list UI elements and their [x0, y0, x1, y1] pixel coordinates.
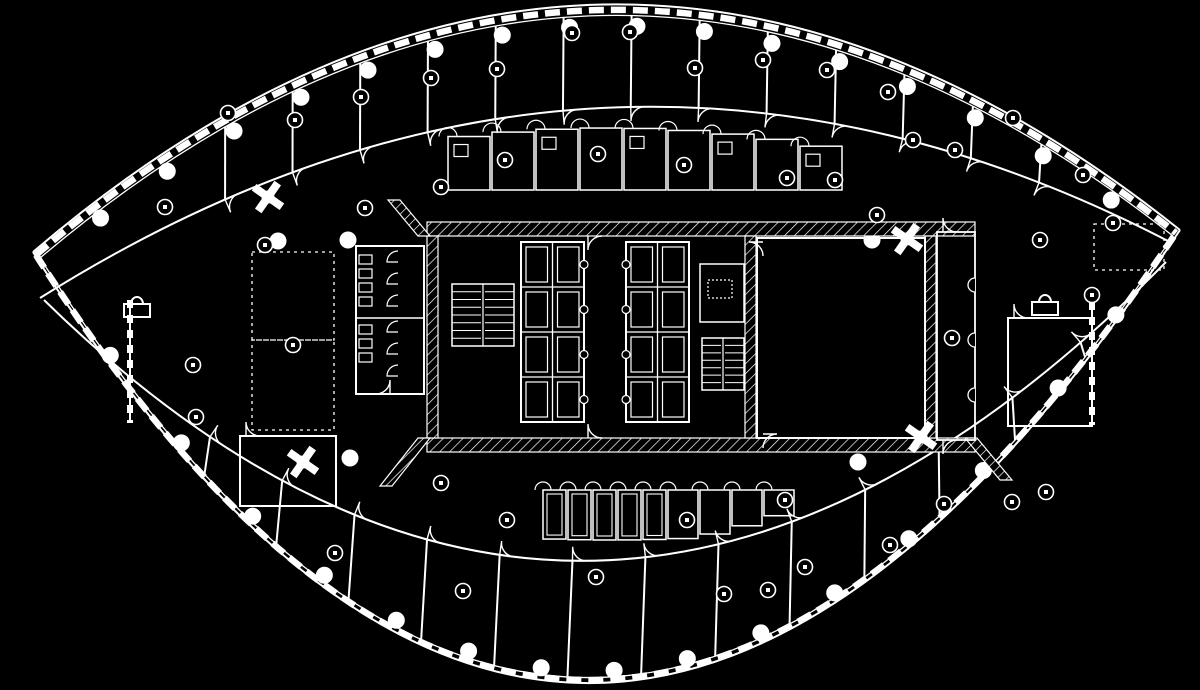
room-tag-glyph	[1038, 238, 1042, 242]
room-tag-glyph	[194, 415, 198, 419]
door-arc	[1034, 182, 1052, 200]
column-marker	[360, 62, 376, 78]
room-tag-glyph	[886, 90, 890, 94]
column-marker	[901, 531, 917, 547]
service-shaft	[572, 494, 587, 536]
hatched-wall	[427, 236, 438, 438]
column-marker	[696, 24, 712, 40]
column-marker	[461, 643, 477, 659]
room-tag-glyph	[783, 498, 787, 502]
elevator-car	[526, 337, 548, 372]
stall-door-arc	[387, 251, 398, 262]
column-marker	[316, 567, 332, 583]
elevator-door-notch	[622, 261, 630, 269]
room-tag-glyph	[722, 592, 726, 596]
service-door-nook	[791, 137, 809, 146]
column-marker	[1103, 192, 1119, 208]
partition-wall	[204, 437, 210, 474]
room-tag-glyph	[1011, 116, 1015, 120]
column-marker	[427, 41, 443, 57]
elevator-car	[526, 292, 548, 327]
room-tag-glyph	[942, 502, 946, 506]
door-arc	[246, 422, 260, 436]
service-door-nook	[692, 482, 708, 490]
column-marker	[102, 347, 118, 363]
room-tag-glyph	[911, 138, 915, 142]
column-marker	[1108, 307, 1124, 323]
stall-door-arc	[387, 343, 398, 354]
room-tag-glyph	[875, 213, 879, 217]
column-marker	[173, 435, 189, 451]
room-tag-glyph	[803, 565, 807, 569]
service-shaft	[454, 145, 468, 157]
column-marker	[1050, 380, 1066, 396]
room-tag-glyph	[1044, 490, 1048, 494]
hatched-wall	[380, 438, 430, 486]
outer-wall	[33, 230, 1180, 683]
column-marker	[1035, 148, 1051, 164]
dashed-partition-room	[252, 340, 334, 430]
room-tag-glyph	[1090, 293, 1094, 297]
service-shaft	[597, 494, 612, 536]
washroom-fixture	[359, 269, 372, 278]
door-arc	[832, 124, 848, 140]
column-marker	[899, 79, 915, 95]
column-marker	[679, 651, 695, 667]
room-tag-glyph	[596, 152, 600, 156]
service-room	[700, 490, 730, 534]
door-leaf-cluster	[901, 233, 913, 245]
large-room	[757, 238, 925, 438]
service-door-nook	[756, 482, 772, 490]
column-marker	[388, 612, 404, 628]
door-arc	[572, 547, 586, 561]
elevator-door-notch	[622, 351, 630, 359]
partition-wall	[641, 557, 645, 674]
column-marker	[342, 450, 358, 466]
hatched-wall	[925, 236, 936, 438]
elevator-car	[631, 382, 653, 417]
service-door-nook	[703, 125, 721, 134]
partition-wall	[421, 540, 427, 640]
service-door-nook	[571, 119, 589, 128]
partition-wall	[790, 522, 792, 624]
column-marker	[494, 27, 510, 43]
elevator-car	[526, 247, 548, 282]
partition-wall	[715, 544, 718, 656]
room-tag-glyph	[1010, 500, 1014, 504]
room-tag-glyph	[825, 68, 829, 72]
washroom-fixture	[359, 339, 372, 348]
washroom-fixture	[359, 353, 372, 362]
door-arc	[859, 471, 878, 490]
door-arc	[293, 168, 311, 186]
service-door-nook	[635, 482, 651, 490]
elevator-car	[631, 292, 653, 327]
interior-room	[1008, 318, 1092, 426]
service-door-nook	[724, 482, 740, 490]
partition-wall	[1081, 342, 1085, 357]
elevator-door-notch	[622, 396, 630, 404]
service-shaft	[630, 136, 644, 148]
door-arc	[588, 424, 602, 438]
service-door-nook	[560, 482, 576, 490]
stall-door-arc	[387, 273, 398, 284]
room-tag-glyph	[628, 30, 632, 34]
room-tag-glyph	[833, 178, 837, 182]
room-tag-glyph	[888, 543, 892, 547]
room-tag-glyph	[594, 575, 598, 579]
service-shaft	[542, 137, 556, 149]
washroom-block	[356, 246, 424, 394]
door-arc	[588, 236, 602, 250]
mech-room	[700, 264, 744, 322]
door-leaf-cluster	[262, 191, 274, 203]
floor-plan-canvas	[0, 0, 1200, 690]
column-marker	[245, 508, 261, 524]
room-tag-glyph	[953, 148, 957, 152]
elevator-car	[558, 292, 580, 327]
room-tag-glyph	[163, 205, 167, 209]
column-marker	[226, 123, 242, 139]
fixture-icon	[1039, 295, 1051, 302]
elevator-car	[558, 382, 580, 417]
mech-equipment	[708, 280, 732, 298]
room-tag-glyph	[1111, 221, 1115, 225]
room-tag-glyph	[429, 76, 433, 80]
service-door-nook	[535, 482, 551, 490]
room-tag-glyph	[766, 588, 770, 592]
partition-wall	[1012, 398, 1015, 440]
room-tag-glyph	[682, 163, 686, 167]
door-arc	[1071, 323, 1091, 343]
room-tag-glyph	[685, 518, 689, 522]
column-marker	[340, 232, 356, 248]
elevator-car	[631, 247, 653, 282]
column-marker	[533, 660, 549, 676]
door-leaf-cluster	[915, 431, 927, 443]
washroom-fixture	[359, 283, 372, 292]
lobby-door-notch	[968, 388, 975, 402]
elevator-car	[663, 292, 685, 327]
elevator-door-notch	[622, 306, 630, 314]
lobby-door-notch	[968, 333, 975, 347]
partition-wall	[864, 490, 865, 577]
service-shaft	[718, 142, 732, 154]
elevator-car	[631, 337, 653, 372]
elevator-door-notch	[580, 261, 588, 269]
door-arc	[1004, 378, 1024, 398]
service-shaft	[806, 154, 820, 166]
column-marker	[764, 35, 780, 51]
column-marker	[159, 163, 175, 179]
washroom-fixture	[359, 325, 372, 334]
service-door-nook	[585, 482, 601, 490]
floor-plan-stage	[0, 0, 1200, 690]
elevator-car	[526, 382, 548, 417]
door-arc	[698, 108, 713, 123]
elevator-car	[558, 337, 580, 372]
stall-door-arc	[387, 295, 398, 306]
service-shaft	[622, 494, 637, 536]
door-arc	[563, 110, 578, 125]
room-tag-glyph	[761, 58, 765, 62]
elevator-car	[558, 247, 580, 282]
service-shaft	[547, 494, 562, 535]
stall-door-arc	[387, 321, 398, 332]
column-marker	[827, 585, 843, 601]
service-shaft	[647, 494, 662, 535]
service-door-nook	[527, 120, 545, 129]
hatched-wall	[427, 438, 975, 452]
service-door-nook	[610, 482, 626, 490]
elevator-door-notch	[580, 306, 588, 314]
room-tag-glyph	[363, 206, 367, 210]
door-arc	[1014, 304, 1028, 318]
washroom-fixture	[359, 297, 372, 306]
door-arc	[210, 425, 229, 444]
service-door-nook	[615, 119, 633, 128]
office-inner-wall-bottom	[44, 262, 1166, 561]
door-arc	[376, 380, 390, 394]
room-tag-glyph	[263, 243, 267, 247]
door-arc	[355, 502, 373, 520]
room-tag-glyph	[570, 31, 574, 35]
door-arc	[225, 194, 243, 212]
washroom-fixture	[359, 255, 372, 264]
partition-wall	[494, 555, 500, 666]
partition-wall	[276, 481, 282, 544]
room-tag-glyph	[226, 111, 230, 115]
elevator-door-notch	[580, 351, 588, 359]
room-tag-glyph	[291, 343, 295, 347]
room-tag-glyph	[785, 176, 789, 180]
lobby-door-notch	[968, 278, 975, 292]
fixture-icon	[1032, 302, 1058, 315]
elevator-car	[663, 247, 685, 282]
hatched-wall	[388, 200, 430, 236]
room-tag-glyph	[461, 589, 465, 593]
room-tag-glyph	[503, 158, 507, 162]
room-tag-glyph	[333, 551, 337, 555]
room-tag-glyph	[359, 95, 363, 99]
room-tag-glyph	[693, 66, 697, 70]
room-tag-glyph	[950, 336, 954, 340]
room-tag-glyph	[495, 67, 499, 71]
partition-wall	[349, 515, 355, 599]
elevator-door-notch	[580, 396, 588, 404]
column-marker	[753, 625, 769, 641]
column-marker	[850, 454, 866, 470]
partition-wall	[567, 561, 572, 677]
room-tag-glyph	[191, 363, 195, 367]
room-tag-glyph	[1081, 173, 1085, 177]
door-leaf-cluster	[297, 456, 309, 468]
service-door-nook	[660, 482, 676, 490]
column-marker	[967, 110, 983, 126]
column-marker	[93, 210, 109, 226]
hatched-wall	[745, 236, 756, 438]
column-marker	[606, 662, 622, 678]
curtain-mullions	[36, 10, 1176, 255]
room-tag-glyph	[439, 185, 443, 189]
elevator-car	[663, 337, 685, 372]
room-tag-glyph	[293, 118, 297, 122]
service-room	[732, 490, 762, 526]
stall-door-arc	[387, 365, 398, 376]
elevator-car	[663, 382, 685, 417]
dashed-partition-room	[252, 252, 334, 340]
column-marker	[293, 89, 309, 105]
room-tag-glyph	[439, 481, 443, 485]
door-arc	[631, 107, 645, 121]
room-tag-glyph	[505, 518, 509, 522]
